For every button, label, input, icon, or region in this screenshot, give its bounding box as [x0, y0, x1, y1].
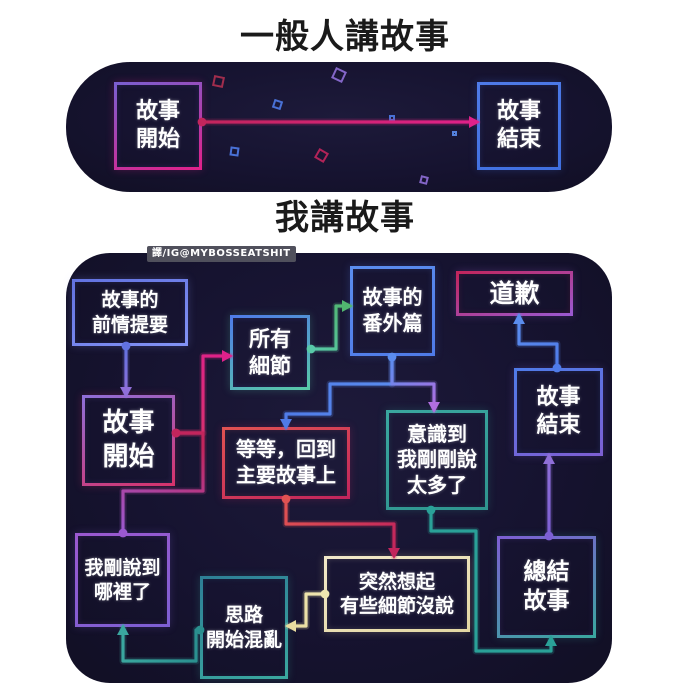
node-label-line: 結束	[497, 126, 541, 154]
flow-node-all-details: 所有細節	[230, 315, 310, 390]
node-label-line: 故事的	[363, 285, 423, 311]
node-label-line: 意識到	[407, 422, 467, 448]
flow-node-thoughts-confused: 思路開始混亂	[200, 576, 288, 679]
node-label-line: 故事	[102, 407, 154, 440]
node-label-line: 所有	[249, 326, 291, 353]
flow-node-suddenly-remember: 突然想起有些細節沒說	[324, 556, 470, 632]
node-label-line: 故事	[136, 98, 180, 126]
flow-node-apology: 道歉	[456, 271, 573, 316]
node-label-line: 等等，回到	[236, 437, 336, 463]
decor-square	[212, 75, 225, 88]
node-label-line: 故事的	[101, 288, 158, 312]
node-label-line: 我剛剛說	[397, 447, 477, 473]
flow-node-wait-back-to-main: 等等，回到主要故事上	[222, 427, 350, 499]
node-label-line: 開始混亂	[206, 628, 282, 652]
flow-node-story-start: 故事開始	[82, 395, 175, 486]
flow-node-where-was-i: 我剛說到哪裡了	[75, 533, 170, 627]
node-label-line: 我剛說到	[84, 556, 160, 580]
title-my-story: 我講故事	[0, 197, 690, 239]
node-label-line: 道歉	[489, 278, 539, 310]
watermark-badge: 譯/IG@MYBOSSEATSHIT	[147, 246, 296, 262]
node-label-line: 故事	[536, 384, 580, 412]
node-label-line: 細節	[249, 353, 291, 380]
node-label-line: 開始	[136, 126, 180, 154]
decor-square	[452, 131, 457, 136]
flow-node-story-recap: 故事的前情提要	[72, 279, 188, 346]
node-label-line: 故事	[497, 98, 541, 126]
node-label-line: 故事	[524, 587, 570, 616]
meme-page: 一般人講故事 我講故事 譯/IG@MYBOSSEATSHIT 故事開始故事結束故…	[0, 0, 690, 690]
node-label-line: 太多了	[407, 473, 467, 499]
node-label-line: 番外篇	[363, 311, 423, 337]
flow-node-story-end-simple: 故事結束	[477, 82, 561, 170]
flow-node-story-end: 故事結束	[514, 368, 603, 456]
flow-node-summarize-story: 總結故事	[497, 536, 596, 638]
node-label-line: 主要故事上	[236, 463, 336, 489]
node-label-line: 思路	[225, 603, 263, 627]
node-label-line: 總結	[524, 558, 570, 587]
node-label-line: 突然想起	[359, 570, 435, 594]
flow-node-realize-said-too-much: 意識到我剛剛說太多了	[386, 410, 488, 510]
flow-node-story-start-simple: 故事開始	[114, 82, 202, 170]
decor-square	[389, 115, 395, 121]
node-label-line: 結束	[536, 412, 580, 440]
node-label-line: 開始	[102, 441, 154, 474]
flow-node-side-story: 故事的番外篇	[350, 266, 435, 356]
node-label-line: 前情提要	[92, 313, 168, 337]
decor-square	[229, 146, 239, 156]
node-label-line: 哪裡了	[94, 580, 151, 604]
node-label-line: 有些細節沒說	[340, 594, 454, 618]
title-normal-story: 一般人講故事	[0, 16, 690, 58]
